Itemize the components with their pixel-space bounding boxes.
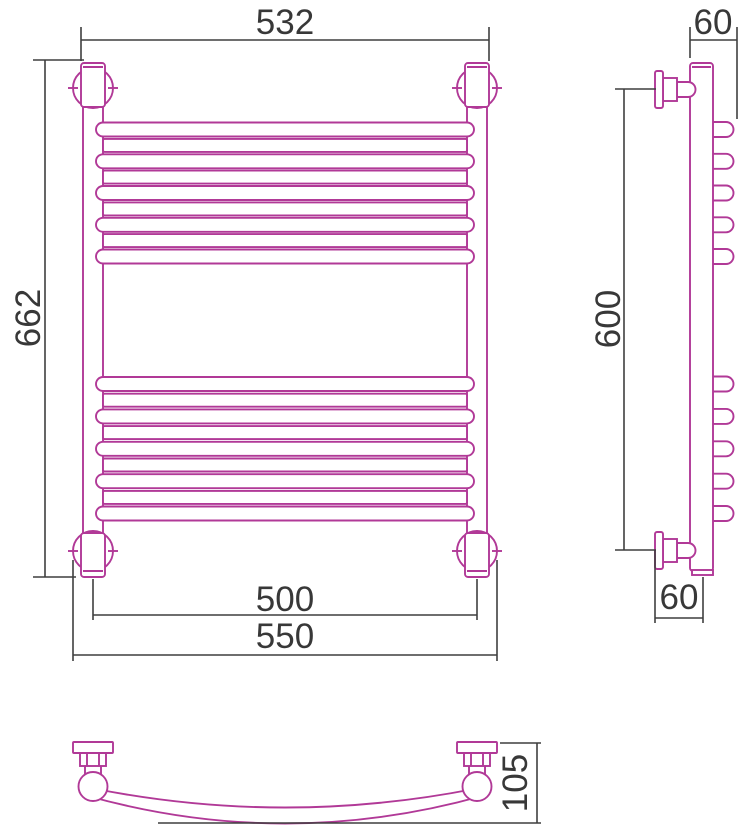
side-view — [655, 63, 734, 575]
rung-plain — [103, 459, 467, 472]
rung-capsule — [96, 442, 474, 456]
bottom-view — [73, 742, 497, 824]
bracket-flange — [655, 71, 663, 108]
side-post-bottom-cap — [692, 570, 713, 575]
bottom-bracket-left — [73, 742, 113, 801]
rung-plain — [103, 202, 467, 215]
side-rung-bump — [713, 186, 734, 201]
post-section-circle — [79, 772, 108, 801]
side-rung-bump — [713, 474, 734, 489]
dim-600: 600 — [589, 89, 656, 550]
dim-label-550: 550 — [256, 617, 314, 656]
fitting-top-left — [68, 63, 118, 108]
fitting-bottom-left — [68, 531, 118, 577]
rung-capsule — [96, 154, 474, 168]
side-rung-bump — [713, 506, 734, 521]
dim-label-60-top: 60 — [694, 3, 733, 42]
technical-drawing: 532 662 500 550 60 — [0, 0, 750, 838]
curved-rung-upper-edge — [96, 789, 474, 808]
dim-label-600: 600 — [589, 290, 628, 348]
front-rungs — [96, 123, 474, 521]
rung-plain — [103, 171, 467, 184]
rung-plain — [103, 426, 467, 439]
rung-plain — [103, 139, 467, 152]
side-rung-bump — [713, 154, 734, 169]
pipe-stub — [465, 63, 489, 107]
curved-rung-lower-edge — [88, 796, 482, 824]
bracket-nut — [464, 753, 490, 766]
bracket-plate — [73, 742, 113, 753]
bracket-plate — [457, 742, 497, 753]
rung-plain — [103, 234, 467, 247]
dim-500: 500 — [93, 579, 477, 620]
dim-label-500: 500 — [256, 580, 314, 619]
side-rung-bump — [713, 217, 734, 232]
rung-plain — [103, 491, 467, 504]
bracket-neck — [677, 82, 696, 97]
side-rung-bump — [713, 441, 734, 456]
dim-label-662: 662 — [9, 289, 48, 347]
post-section-circle — [463, 772, 492, 801]
fitting-bottom-right — [452, 531, 502, 577]
bracket-neck — [677, 543, 696, 558]
bracket-nut — [663, 78, 677, 101]
pipe-stub — [81, 63, 105, 107]
rung-capsule — [96, 507, 474, 521]
rung-plain — [103, 394, 467, 407]
dim-662: 662 — [9, 60, 84, 577]
fitting-top-right — [452, 63, 502, 108]
bottom-bracket-right — [457, 742, 497, 801]
rung-capsule — [96, 409, 474, 423]
rung-capsule — [96, 250, 474, 264]
dim-label-105: 105 — [496, 754, 535, 812]
bracket-nut — [663, 539, 677, 562]
rung-capsule — [96, 474, 474, 488]
side-rung-bump — [713, 122, 734, 137]
side-rung-bump — [713, 249, 734, 264]
side-rung-bump — [713, 377, 734, 392]
dim-label-532: 532 — [256, 3, 314, 42]
side-post — [690, 63, 713, 571]
side-rung-bumps — [713, 122, 734, 521]
rung-capsule — [96, 218, 474, 232]
rung-capsule — [96, 123, 474, 137]
side-rung-bump — [713, 409, 734, 424]
front-view — [68, 63, 502, 577]
rung-capsule — [96, 186, 474, 200]
rung-capsule — [96, 377, 474, 391]
dim-532: 532 — [81, 3, 489, 61]
drawing-canvas: 532 662 500 550 60 — [0, 0, 750, 838]
bracket-nut — [80, 753, 106, 766]
bracket-flange — [655, 532, 663, 569]
dim-label-60-bottom: 60 — [660, 578, 699, 617]
